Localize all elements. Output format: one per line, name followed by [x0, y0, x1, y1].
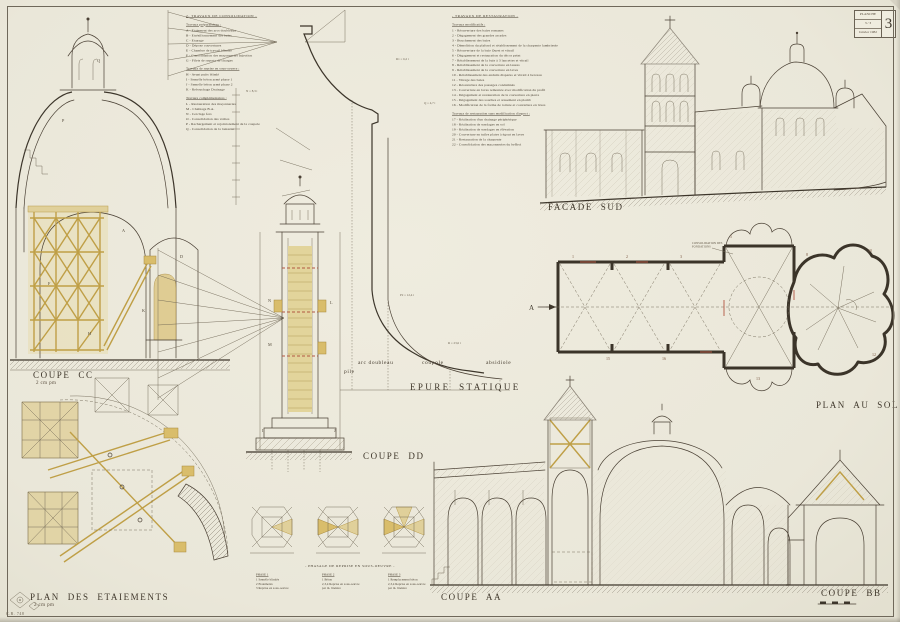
svg-text:12: 12	[872, 352, 876, 357]
sheet-number-stamp: PLANCHE 3 / 3 Janvier 1982 3	[854, 10, 896, 38]
label-coupe-cc: COUPE CC	[33, 370, 94, 380]
scan-edge-right	[896, 0, 900, 622]
svg-text:P: P	[62, 118, 65, 123]
svg-text:A: A	[122, 228, 125, 233]
svg-text:A: A	[529, 304, 534, 312]
phasage-diagrams	[250, 507, 426, 553]
note-fondations: Consolidation des fondations	[692, 242, 792, 256]
svg-text:16: 16	[662, 356, 666, 361]
svg-text:M: M	[268, 342, 272, 347]
label-coupe-dd: COUPE DD	[363, 451, 425, 461]
phase-3-caption: PHASE 31 Remplacement béton2,3,4 Reprise…	[388, 573, 528, 609]
plan-etaiements-drawing	[22, 396, 228, 562]
svg-text:R = 23,6 t: R = 23,6 t	[448, 341, 461, 346]
svg-text:H: H	[88, 331, 91, 336]
label-plan-au-sol: PLAN AU SOL	[816, 400, 899, 410]
label-coupole: coupole	[422, 360, 444, 366]
stamp-title: PLANCHE	[855, 11, 881, 20]
svg-text:13: 13	[756, 376, 760, 381]
svg-text:N: N	[268, 298, 271, 303]
stamp-sheet-number: 3	[882, 11, 895, 37]
svg-text:P2 = 12,4 t: P2 = 12,4 t	[400, 293, 414, 298]
corner-mark-text: C.R. 748	[6, 611, 24, 616]
label-coupe-cc-scale: 2 cm pm	[36, 381, 56, 386]
svg-text:Q: Q	[97, 58, 100, 63]
svg-text:10: 10	[868, 248, 872, 253]
label-plan-etaiements-scale: 2 cm pm	[34, 603, 54, 608]
consolidation-legend: 2- TRAVAUX DE CONSOLIDATION -Travaux pré…	[186, 14, 486, 250]
restauration-legend: - TRAVAUX DE RESTAURATION -Travaux modif…	[452, 14, 752, 280]
label-pile: pile	[344, 369, 355, 375]
svg-text:8: 8	[806, 252, 808, 257]
svg-text:L: L	[330, 300, 333, 305]
stamp-date: Janvier 1982	[855, 29, 881, 37]
coupe-bb-drawing	[786, 450, 888, 604]
label-epure-statique: EPURE STATIQUE	[410, 382, 521, 392]
label-facade-sud: FACADE SUD	[548, 202, 624, 212]
coupe-aa-drawing	[430, 376, 790, 593]
label-absidiole: absidiole	[486, 360, 511, 366]
svg-text:K: K	[142, 308, 145, 313]
label-plan-etaiements: PLAN DES ETAIEMENTS	[30, 592, 169, 602]
label-coupe-bb: COUPE BB	[821, 588, 882, 598]
scan-edge-bottom	[0, 617, 900, 622]
drawing-sheet: ADFHKQPR1 = 6,2 tQ = 4,7 tN = 8,3 tP2 = …	[0, 0, 900, 622]
svg-text:D: D	[180, 254, 183, 259]
label-arc-doubleau: arc doubleau	[358, 360, 393, 366]
stamp-mid: 3 / 3	[855, 20, 881, 29]
svg-text:15: 15	[606, 356, 610, 361]
